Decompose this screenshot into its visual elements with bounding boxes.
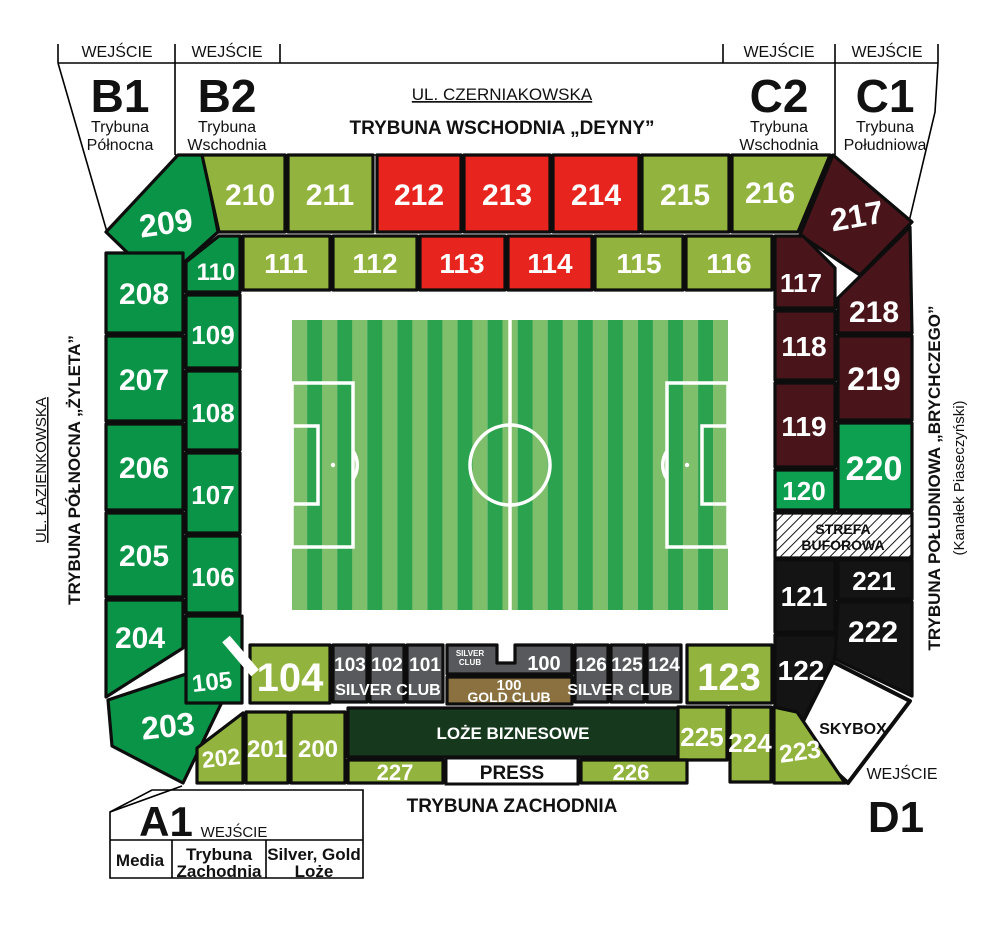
gate-b1-code: B1 [91, 70, 150, 122]
gold-club-label: GOLD CLUB [467, 689, 550, 705]
pitch [292, 320, 728, 610]
entrance-label-b1: WEJŚCIE [81, 42, 152, 61]
section-207-label: 207 [119, 364, 169, 397]
section-226-label: 226 [613, 760, 650, 785]
stand-south-note: (Kanałek Piaseczyński) [951, 400, 968, 555]
gate-c1-code: C1 [856, 70, 915, 122]
strefa-line2: BUFOROWA [801, 537, 884, 553]
entrance-label-b2: WEJŚCIE [191, 42, 262, 61]
section-202-label: 202 [201, 743, 242, 773]
section-205-label: 205 [119, 540, 169, 573]
gate-a1-entrance: WEJŚCIE [201, 823, 268, 841]
sections-north-east: 209 210 211 212 213 214 215 216 217 110 … [106, 155, 912, 308]
section-116-label: 116 [706, 248, 751, 279]
section-109-label: 109 [191, 320, 234, 350]
loze-biznesowe-label: LOŻE BIZNESOWE [437, 724, 590, 743]
section-201-label: 201 [247, 736, 287, 763]
section-224-label: 224 [728, 728, 772, 758]
sections-south: 118 119 120 218 219 220 STREFA BUFOROWA … [775, 227, 912, 783]
sections-west-bottom: 104 103 102 101 SILVER CLUB SILVER CLUB … [226, 639, 772, 705]
section-107-label: 107 [191, 480, 234, 510]
gate-b2-sub1: Trybuna [198, 119, 256, 136]
section-100-top-label: 100 [527, 653, 560, 675]
silver-club-small-line2: CLUB [459, 658, 481, 667]
section-103-label: 103 [334, 655, 366, 676]
section-117-label: 117 [780, 268, 822, 298]
section-225-label: 225 [680, 722, 723, 752]
section-115-label: 115 [616, 248, 661, 279]
gate-a1-col3-line2: Loże [295, 862, 334, 881]
gate-b1-sub2: Północna [87, 137, 154, 154]
section-215-label: 215 [660, 179, 710, 212]
section-104-label: 104 [257, 656, 324, 700]
gate-b1-sub1: Trybuna [91, 119, 149, 136]
section-220-label: 220 [846, 450, 903, 488]
gate-c1-sub1: Trybuna [856, 119, 914, 136]
section-105-label: 105 [191, 667, 234, 698]
section-120-label: 120 [782, 476, 825, 506]
press-label: PRESS [480, 763, 544, 784]
top-header: WEJŚCIE WEJŚCIE WEJŚCIE WEJŚCIE B1 Trybu… [81, 42, 926, 154]
gate-a1-code: A1 [139, 798, 193, 845]
gate-c1-sub2: Południowa [844, 137, 927, 154]
gate-a1-col2-line2: Zachodnia [176, 862, 262, 881]
section-222-label: 222 [848, 616, 898, 649]
street-north: UL. CZERNIAKOWSKA [412, 85, 593, 104]
section-227-label: 227 [377, 760, 414, 785]
stand-north-label: TRYBUNA PÓŁNOCNA „ŻYLETA” [65, 335, 84, 605]
gate-a1-col1: Media [116, 851, 165, 870]
section-108-label: 108 [191, 398, 234, 428]
gate-c2-code: C2 [750, 70, 809, 122]
section-219-label: 219 [847, 361, 900, 397]
section-111-label: 111 [264, 248, 308, 279]
stand-east-label: TRYBUNA WSCHODNIA „DEYNY” [349, 118, 654, 139]
section-206-label: 206 [119, 452, 169, 485]
section-211-label: 211 [306, 179, 354, 212]
section-101-label: 101 [409, 655, 441, 676]
section-122-label: 122 [778, 655, 825, 686]
section-216-label: 216 [745, 177, 795, 210]
section-210-label: 210 [225, 179, 275, 212]
section-208-label: 208 [119, 278, 169, 311]
entrance-label-c2: WEJŚCIE [743, 42, 814, 61]
section-203-label: 203 [139, 705, 196, 746]
section-121-label: 121 [781, 581, 828, 612]
section-126-label: 126 [575, 655, 607, 676]
section-102-label: 102 [371, 655, 403, 676]
section-218-label: 218 [849, 296, 899, 329]
section-214-label: 214 [571, 179, 621, 212]
gate-d1-entrance: WEJŚCIE [866, 764, 937, 783]
stand-south-label: TRYBUNA POŁUDNIOWA „BRYCHCZEGO” [925, 305, 944, 650]
section-204-label: 204 [115, 622, 165, 655]
stadium-map: WEJŚCIE WEJŚCIE WEJŚCIE WEJŚCIE B1 Trybu… [0, 0, 1000, 930]
section-118-label: 118 [781, 331, 826, 362]
silver-club-left-label: SILVER CLUB [335, 682, 440, 699]
gate-d1-code: D1 [868, 793, 924, 842]
section-124-label: 124 [648, 655, 680, 676]
gate-b2-code: B2 [198, 70, 257, 122]
section-213-label: 213 [482, 179, 532, 212]
street-west: UL. ŁAZIENKOWSKA [33, 397, 50, 543]
section-221-label: 221 [852, 566, 895, 596]
skybox-label: SKYBOX [819, 721, 887, 738]
section-212-label: 212 [394, 179, 444, 212]
sections-west-left: 208 207 206 205 204 203 109 108 107 106 … [106, 253, 242, 783]
section-106-label: 106 [191, 562, 234, 592]
section-200-label: 200 [298, 736, 338, 763]
gate-c2-sub2: Wschodnia [739, 137, 818, 154]
silver-club-right-label: SILVER CLUB [567, 682, 672, 699]
strefa-line1: STREFA [815, 521, 870, 537]
section-123-label: 123 [697, 657, 760, 699]
section-113-label: 113 [439, 248, 484, 279]
section-223-label: 223 [777, 735, 822, 769]
section-112-label: 112 [352, 248, 397, 279]
section-114-label: 114 [527, 248, 573, 279]
section-119-label: 119 [781, 411, 826, 442]
gate-c2-sub1: Trybuna [750, 119, 808, 136]
stand-west-label: TRYBUNA ZACHODNIA [407, 796, 618, 817]
sections-west-outer: 202 201 200 LOŻE BIZNESOWE 225 224 223 2… [197, 707, 845, 785]
section-125-label: 125 [611, 655, 643, 676]
silver-club-small-line1: SILVER [456, 649, 485, 658]
entrance-label-c1: WEJŚCIE [851, 42, 922, 61]
gate-b2-sub2: Wschodnia [187, 137, 266, 154]
section-110-label: 110 [197, 259, 236, 286]
section-209-label: 209 [137, 201, 195, 244]
